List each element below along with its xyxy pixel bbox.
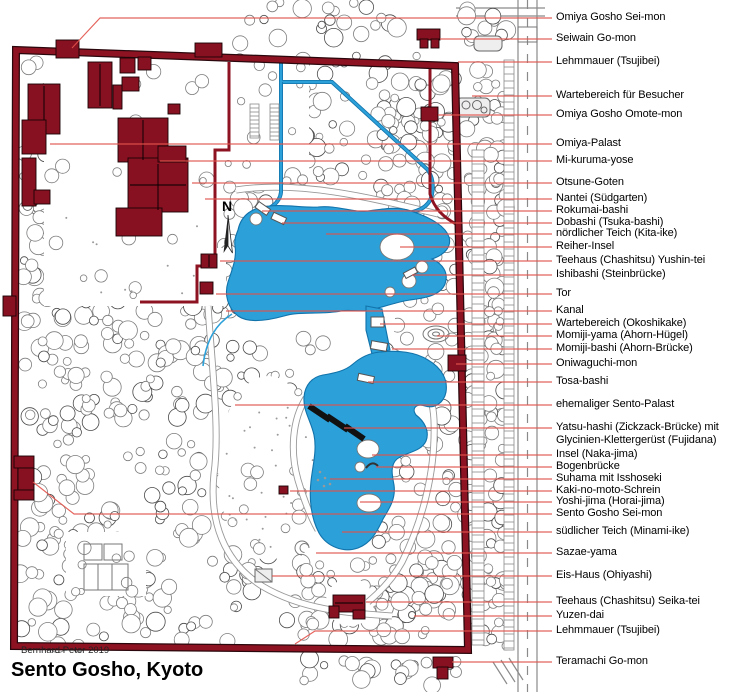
yoshi-jima-island bbox=[357, 494, 381, 512]
west-wall-gate bbox=[3, 296, 16, 316]
okoshikake-shelter bbox=[371, 317, 384, 327]
omote-mon-gate bbox=[421, 107, 438, 121]
omiya-sei-mon-gate bbox=[56, 40, 79, 58]
map-canvas: N bbox=[0, 0, 740, 692]
sazae-yama-spiral bbox=[295, 541, 309, 555]
teramachi-go-mon-gate bbox=[433, 657, 453, 679]
inner-gate bbox=[200, 282, 213, 294]
mi-kuruma-yose-porch bbox=[158, 146, 186, 162]
yuzen-dai bbox=[409, 612, 416, 619]
seiwain-go-mon-gate bbox=[417, 29, 440, 48]
oniwaguchi-mon-gate bbox=[448, 355, 466, 371]
garden-map: N Omiya Gosho Sei-mon Seiwain Go-mon Leh… bbox=[0, 0, 740, 692]
ice-house bbox=[255, 569, 272, 582]
credit: Bernhard Peter 2019 bbox=[21, 645, 109, 656]
kaki-no-moto-shrine bbox=[279, 486, 288, 494]
svg-text:N: N bbox=[222, 198, 232, 214]
yushin-tei-teahouse bbox=[201, 254, 217, 268]
page-title: Sento Gosho, Kyoto bbox=[11, 659, 203, 682]
north-wall-gate bbox=[195, 43, 222, 57]
